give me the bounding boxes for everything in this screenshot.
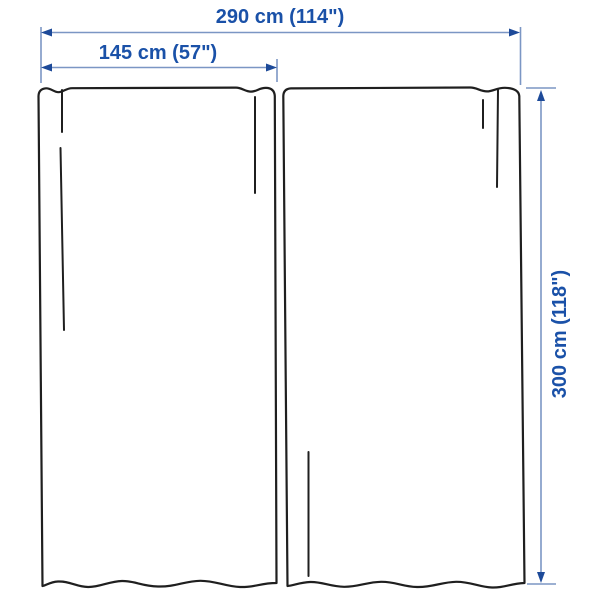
panel-width-right-arrow-icon	[266, 64, 277, 72]
total-width-label: 290 cm (114")	[180, 7, 380, 27]
left-panel-outline	[39, 88, 277, 587]
total-width-left-arrow-icon	[41, 29, 52, 37]
right-panel-outline	[283, 87, 524, 587]
curtain-dimension-diagram: 290 cm (114") 145 cm (57") 300 cm (118")	[0, 0, 600, 600]
height-top-arrow-icon	[537, 90, 545, 101]
right-curtain-panel	[283, 87, 524, 587]
total-width-right-arrow-icon	[509, 29, 520, 37]
dimension-lines	[41, 27, 556, 584]
panel-width-label: 145 cm (57")	[58, 43, 258, 63]
panel-width-left-arrow-icon	[41, 64, 52, 72]
diagram-drawing	[0, 0, 600, 600]
right-panel-fold-line-top	[497, 90, 498, 187]
left-curtain-panel	[39, 88, 277, 587]
height-label: 300 cm (118")	[550, 270, 570, 398]
left-panel-fold-line-long	[61, 148, 65, 330]
height-bottom-arrow-icon	[537, 572, 545, 583]
